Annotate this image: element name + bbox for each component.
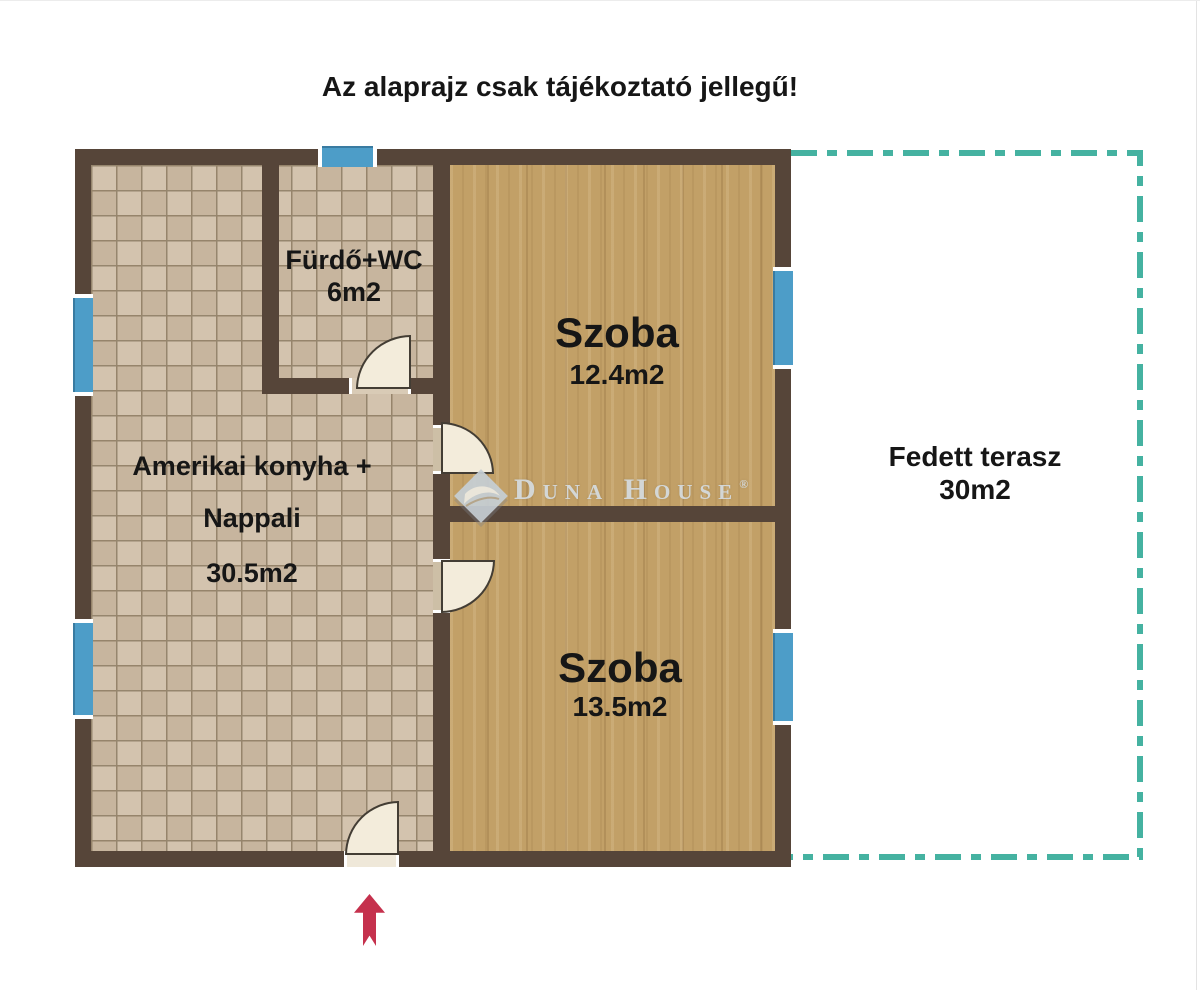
label-bathroom-area: 6m2	[327, 277, 381, 308]
dunahouse-brand: Duna House	[514, 473, 739, 506]
label-bedroom1-name: Szoba	[555, 309, 679, 357]
registered-mark: ®	[739, 477, 748, 491]
label-bathroom-name: Fürdő+WC	[285, 245, 422, 276]
dunahouse-logo-swoosh-icon	[455, 471, 507, 523]
floorplan-canvas: Az alaprajz csak tájékoztató jellegű! Du…	[0, 0, 1200, 990]
label-bedroom1-area: 12.4m2	[570, 359, 665, 391]
label-terrace-name: Fedett terasz	[889, 441, 1062, 473]
label-living-area: 30.5m2	[206, 558, 298, 589]
label-terrace-area: 30m2	[939, 474, 1011, 506]
label-bedroom2-area: 13.5m2	[573, 691, 668, 723]
label-living-name-line2: Nappali	[203, 503, 301, 534]
dunahouse-watermark-text: Duna House®	[514, 473, 748, 507]
label-living-name-line1: Amerikai konyha +	[132, 451, 371, 482]
label-bedroom2-name: Szoba	[558, 644, 682, 692]
